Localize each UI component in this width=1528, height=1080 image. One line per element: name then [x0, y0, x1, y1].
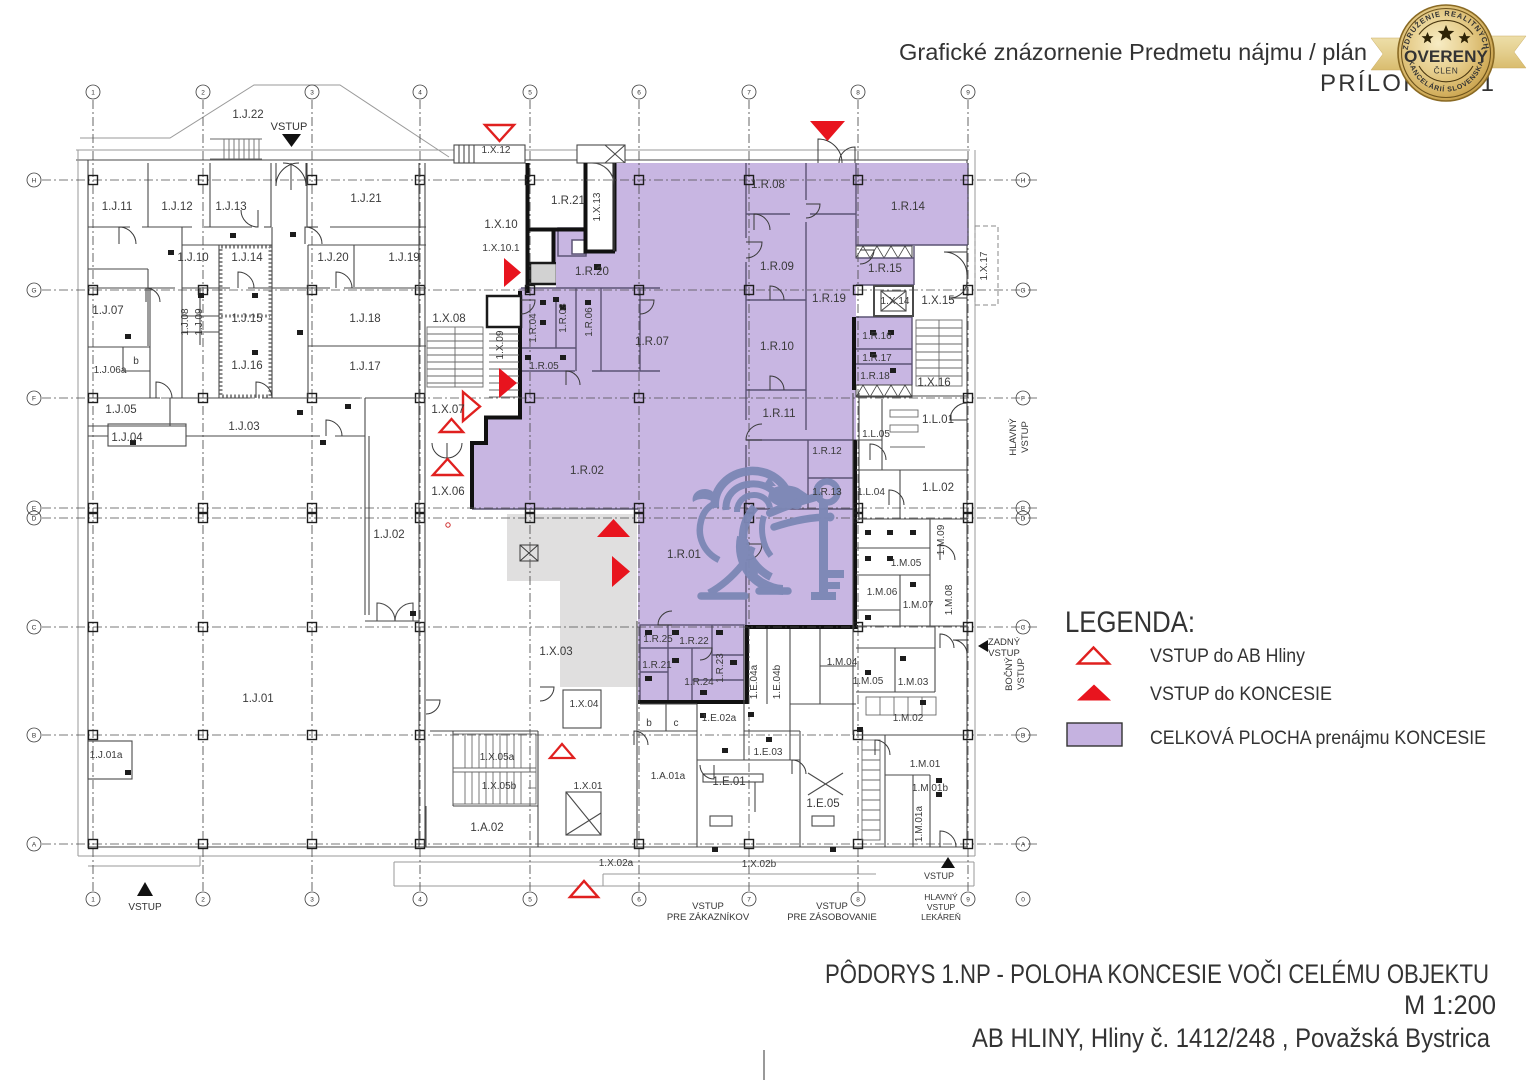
svg-text:9: 9 — [966, 90, 970, 97]
svg-text:VSTUP: VSTUP — [816, 901, 848, 912]
svg-text:1.J.09: 1.J.09 — [194, 308, 205, 336]
svg-text:PÔDORYS 1.NP - POLOHA KONCESIE: PÔDORYS 1.NP - POLOHA KONCESIE VOČI CELÉ… — [825, 958, 1489, 989]
svg-text:1.M.02: 1.M.02 — [893, 713, 924, 724]
svg-text:1.A.01a: 1.A.01a — [651, 771, 686, 782]
svg-text:7: 7 — [747, 90, 751, 97]
svg-text:1.X.09: 1.X.09 — [495, 330, 506, 359]
svg-text:VSTUP: VSTUP — [128, 902, 162, 913]
svg-text:5: 5 — [528, 897, 532, 904]
svg-text:1.R.23: 1.R.23 — [715, 653, 726, 683]
svg-text:1.R.08: 1.R.08 — [751, 179, 785, 191]
svg-text:1.J.04: 1.J.04 — [111, 432, 143, 444]
svg-text:1.L.04: 1.L.04 — [857, 487, 885, 498]
svg-text:1.J.11: 1.J.11 — [102, 201, 132, 213]
svg-text:VSTUP: VSTUP — [927, 902, 956, 912]
svg-text:b: b — [646, 718, 652, 729]
svg-text:1.E.04a: 1.E.04a — [749, 664, 760, 699]
svg-text:1.R.04: 1.R.04 — [528, 313, 539, 343]
svg-text:1.M.09: 1.M.09 — [936, 524, 947, 555]
svg-text:H: H — [32, 178, 37, 185]
svg-text:1.R.03: 1.R.03 — [558, 303, 569, 333]
svg-text:F: F — [32, 396, 36, 403]
svg-text:1.R.20: 1.R.20 — [575, 266, 609, 278]
svg-text:VSTUP: VSTUP — [271, 121, 308, 133]
svg-text:A: A — [32, 842, 37, 849]
svg-text:1.M.04: 1.M.04 — [827, 657, 858, 668]
svg-text:1.X.06: 1.X.06 — [431, 486, 464, 498]
svg-text:c: c — [674, 718, 679, 729]
svg-text:1.R.12: 1.R.12 — [812, 446, 842, 457]
svg-text:1.J.22: 1.J.22 — [232, 109, 263, 121]
svg-text:1.X.01: 1.X.01 — [574, 781, 603, 792]
svg-text:PRE ZÁSOBOVANIE: PRE ZÁSOBOVANIE — [787, 912, 877, 923]
svg-text:1.J.02: 1.J.02 — [373, 529, 404, 541]
svg-text:VSTUP: VSTUP — [1020, 421, 1031, 453]
svg-text:1.R.09: 1.R.09 — [760, 261, 794, 273]
svg-text:1.M.03: 1.M.03 — [898, 677, 929, 688]
svg-text:1.M.08: 1.M.08 — [944, 584, 955, 615]
svg-text:1.M.07: 1.M.07 — [903, 600, 934, 611]
svg-text:1.L.02: 1.L.02 — [922, 482, 954, 494]
svg-text:1.X.12: 1.X.12 — [482, 145, 511, 156]
svg-text:0: 0 — [1021, 897, 1025, 904]
svg-text:HLAVNÝ: HLAVNÝ — [1008, 418, 1019, 456]
svg-text:1.J.12: 1.J.12 — [161, 201, 192, 213]
svg-text:1.J.17: 1.J.17 — [349, 361, 380, 373]
svg-text:VSTUP do KONCESIE: VSTUP do KONCESIE — [1150, 683, 1332, 705]
svg-text:1.J.21: 1.J.21 — [350, 193, 381, 205]
svg-text:1.A.02: 1.A.02 — [470, 822, 503, 834]
svg-text:1.M.01b: 1.M.01b — [912, 783, 949, 794]
svg-text:G: G — [31, 288, 36, 295]
svg-text:1.X.05a: 1.X.05a — [480, 752, 515, 763]
svg-text:CELKOVÁ PLOCHA prenájmu KONCES: CELKOVÁ PLOCHA prenájmu KONCESIE — [1150, 726, 1486, 749]
svg-text:1.X.07: 1.X.07 — [431, 404, 464, 416]
svg-text:1.X.15: 1.X.15 — [921, 295, 954, 307]
svg-text:D: D — [32, 516, 37, 523]
svg-text:1.J.08: 1.J.08 — [180, 308, 191, 336]
svg-text:1.R.21: 1.R.21 — [642, 660, 672, 671]
svg-text:VSTUP: VSTUP — [1016, 658, 1027, 690]
svg-text:LEKÁREŇ: LEKÁREŇ — [921, 912, 961, 922]
svg-text:B: B — [32, 733, 36, 740]
svg-text:1.X.10: 1.X.10 — [484, 219, 517, 231]
svg-text:H: H — [1021, 178, 1026, 185]
svg-text:1.R.16: 1.R.16 — [862, 331, 892, 342]
svg-text:1.R.15: 1.R.15 — [868, 263, 902, 275]
svg-text:8: 8 — [856, 897, 860, 904]
svg-text:1.M.01: 1.M.01 — [910, 759, 941, 770]
svg-text:1.J.20: 1.J.20 — [317, 252, 348, 264]
svg-text:VSTUP: VSTUP — [924, 871, 954, 881]
svg-text:VSTUP: VSTUP — [692, 901, 724, 912]
svg-text:1.J.03: 1.J.03 — [228, 421, 259, 433]
svg-text:E: E — [32, 506, 37, 513]
svg-text:1.R.02: 1.R.02 — [570, 465, 604, 477]
svg-text:1.J.01: 1.J.01 — [242, 693, 273, 705]
svg-text:D: D — [1021, 516, 1026, 523]
svg-text:6: 6 — [637, 90, 641, 97]
svg-text:1.X.03: 1.X.03 — [539, 646, 572, 658]
svg-text:1.J.05: 1.J.05 — [105, 404, 136, 416]
svg-text:E: E — [1021, 506, 1026, 513]
svg-text:A: A — [1021, 842, 1026, 849]
svg-text:HLAVNÝ: HLAVNÝ — [924, 892, 958, 902]
svg-text:1.E.01: 1.E.01 — [712, 776, 745, 788]
svg-text:1.R.18: 1.R.18 — [860, 371, 890, 382]
svg-text:1.J.10: 1.J.10 — [177, 252, 208, 264]
svg-text:M 1:200: M 1:200 — [1404, 990, 1496, 1020]
svg-text:1.R.22: 1.R.22 — [679, 636, 709, 647]
svg-text:1.L.01: 1.L.01 — [922, 414, 954, 426]
svg-text:7: 7 — [747, 897, 751, 904]
svg-text:1.J.19: 1.J.19 — [388, 252, 419, 264]
svg-text:1.J.07: 1.J.07 — [92, 305, 123, 317]
svg-text:2: 2 — [201, 90, 205, 97]
svg-text:C: C — [1021, 625, 1026, 632]
svg-text:1.J.06a: 1.J.06a — [94, 365, 127, 376]
svg-text:1.R.25: 1.R.25 — [643, 634, 673, 645]
svg-text:1.R.24: 1.R.24 — [684, 677, 714, 688]
svg-text:1.E.03: 1.E.03 — [754, 747, 783, 758]
svg-text:1.R.17: 1.R.17 — [862, 353, 892, 364]
svg-text:1.M.06: 1.M.06 — [867, 587, 898, 598]
svg-text:1.J.15: 1.J.15 — [231, 313, 262, 325]
svg-text:BOČNÝ: BOČNÝ — [1004, 656, 1015, 690]
svg-text:1.J.01a: 1.J.01a — [90, 750, 123, 761]
svg-text:G: G — [1020, 288, 1025, 295]
svg-text:1.X.13: 1.X.13 — [592, 192, 603, 221]
svg-text:1.J.18: 1.J.18 — [349, 313, 380, 325]
svg-text:1.M.05: 1.M.05 — [853, 676, 884, 687]
svg-text:Grafické znázornenie Predmetu: Grafické znázornenie Predmetu nájmu / pl… — [899, 39, 1367, 65]
svg-text:1.R.21: 1.R.21 — [551, 195, 585, 207]
svg-text:2: 2 — [201, 897, 205, 904]
svg-text:PRE ZÁKAZNÍKOV: PRE ZÁKAZNÍKOV — [667, 912, 750, 923]
svg-text:1.X.02b: 1.X.02b — [742, 859, 777, 870]
svg-text:9: 9 — [966, 897, 970, 904]
svg-text:B: B — [1021, 733, 1025, 740]
svg-text:1.J.14: 1.J.14 — [231, 252, 263, 264]
svg-text:C: C — [32, 625, 37, 632]
svg-text:1.R.06: 1.R.06 — [584, 307, 595, 337]
svg-text:5: 5 — [528, 90, 532, 97]
svg-text:AB HLINY, Hliny č. 1412/248 ,: AB HLINY, Hliny č. 1412/248 , Považská B… — [972, 1023, 1491, 1053]
svg-text:LEGENDA:: LEGENDA: — [1065, 606, 1195, 639]
svg-text:3: 3 — [310, 90, 314, 97]
svg-text:1.R.05: 1.R.05 — [529, 361, 559, 372]
svg-text:1.R.14: 1.R.14 — [891, 201, 925, 213]
svg-text:1.R.19: 1.R.19 — [812, 293, 846, 305]
svg-text:1.X.17: 1.X.17 — [979, 251, 990, 280]
svg-text:1.R.11: 1.R.11 — [762, 408, 795, 420]
svg-text:1.J.13: 1.J.13 — [215, 201, 246, 213]
svg-text:1.R.10: 1.R.10 — [760, 341, 794, 353]
svg-text:4: 4 — [418, 90, 422, 97]
svg-text:1: 1 — [91, 897, 95, 904]
svg-text:1.X.10.1: 1.X.10.1 — [482, 243, 520, 254]
svg-text:1: 1 — [91, 90, 95, 97]
svg-text:1.X.08: 1.X.08 — [432, 313, 465, 325]
svg-text:1.X.16: 1.X.16 — [917, 377, 950, 389]
svg-text:1.R.07: 1.R.07 — [635, 336, 669, 348]
svg-text:1.X.05b: 1.X.05b — [482, 781, 517, 792]
svg-text:b: b — [133, 356, 139, 367]
svg-text:1.J.16: 1.J.16 — [231, 360, 262, 372]
svg-text:F: F — [1021, 396, 1025, 403]
svg-text:OVERENÝ: OVERENÝ — [1404, 47, 1488, 66]
svg-text:3: 3 — [310, 897, 314, 904]
svg-text:4: 4 — [418, 897, 422, 904]
svg-text:1.L.05: 1.L.05 — [862, 429, 890, 440]
svg-text:ZADNÝ: ZADNÝ — [988, 637, 1021, 648]
svg-text:VSTUP do AB Hliny: VSTUP do AB Hliny — [1150, 645, 1305, 667]
svg-text:ČLEN: ČLEN — [1434, 66, 1459, 76]
svg-text:1.M.01a: 1.M.01a — [914, 805, 925, 842]
svg-text:1.X.04: 1.X.04 — [570, 699, 599, 710]
svg-text:1.X.02a: 1.X.02a — [599, 858, 634, 869]
svg-text:6: 6 — [637, 897, 641, 904]
svg-text:1.E.04b: 1.E.04b — [772, 664, 783, 699]
svg-text:1.M.05: 1.M.05 — [891, 558, 922, 569]
svg-text:1.R.13: 1.R.13 — [812, 487, 842, 498]
svg-text:1.X.14: 1.X.14 — [881, 296, 910, 307]
svg-text:1.E.05: 1.E.05 — [806, 798, 839, 810]
svg-text:1.E.02a: 1.E.02a — [702, 713, 737, 724]
svg-text:1.R.01: 1.R.01 — [667, 549, 701, 561]
svg-text:8: 8 — [856, 90, 860, 97]
